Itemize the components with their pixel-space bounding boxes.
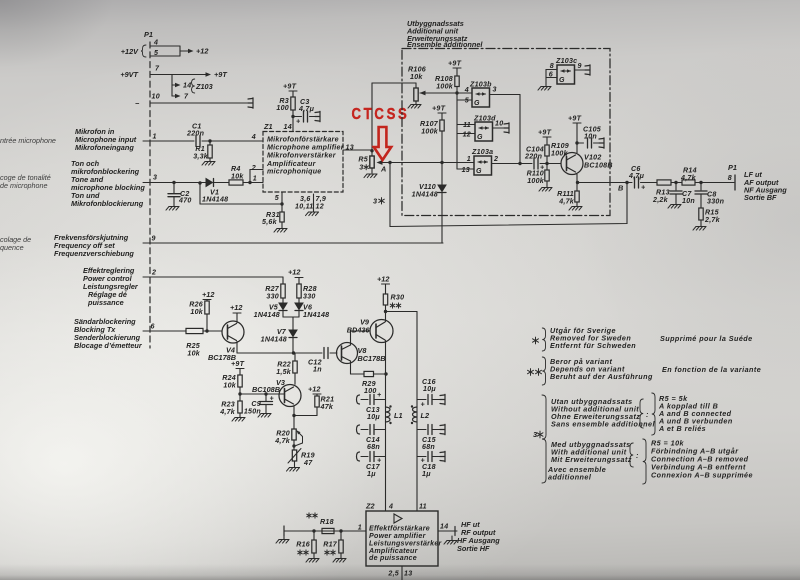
svg-text:1μ: 1μ (422, 470, 431, 478)
svg-text:+: + (377, 457, 381, 465)
svg-text:Mikrofonförstärkare: Mikrofonförstärkare (267, 136, 339, 144)
svg-text:220n: 220n (186, 130, 205, 138)
svg-text:220n: 220n (524, 153, 543, 161)
svg-text:Connexion A–B supprimée: Connexion A–B supprimée (651, 471, 753, 480)
svg-text:1N4148: 1N4148 (202, 196, 228, 204)
svg-text:1,5k: 1,5k (276, 368, 292, 376)
svg-text:1: 1 (253, 175, 257, 183)
svg-text:Z103: Z103 (195, 82, 213, 91)
svg-text:Blocage d’émetteur: Blocage d’émetteur (74, 341, 143, 350)
svg-text:10k: 10k (410, 73, 423, 81)
svg-text:1N4148: 1N4148 (261, 336, 287, 344)
svg-text:10k: 10k (223, 382, 236, 390)
svg-text:+: + (421, 457, 425, 465)
svg-text:Z103a: Z103a (471, 148, 493, 156)
svg-text:1: 1 (153, 133, 157, 141)
svg-text:Beruht auf der Ausführung: Beruht auf der Ausführung (550, 372, 653, 381)
svg-text:+: + (296, 118, 300, 126)
svg-text:R30: R30 (391, 294, 405, 302)
svg-text:2,5: 2,5 (387, 570, 399, 578)
svg-text:Amplificateur: Amplificateur (266, 160, 317, 168)
svg-text:Sortie BF: Sortie BF (744, 193, 777, 202)
svg-text:4,7μ: 4,7μ (298, 105, 315, 113)
svg-text::: : (646, 410, 649, 419)
svg-text:G: G (559, 76, 565, 84)
svg-text:4,7k: 4,7k (219, 408, 236, 416)
svg-text:+12: +12 (202, 290, 214, 299)
svg-text:Entfernt für Schweden: Entfernt für Schweden (550, 341, 636, 350)
svg-text:de puissance: de puissance (369, 554, 417, 562)
svg-text:100: 100 (364, 387, 377, 395)
svg-text:Sortie HF: Sortie HF (457, 544, 490, 553)
svg-text:+12: +12 (308, 385, 320, 394)
svg-text:10n: 10n (682, 197, 695, 205)
svg-text:BC108B: BC108B (584, 162, 613, 170)
svg-text:quence: quence (0, 243, 24, 252)
svg-text:+9T: +9T (568, 115, 582, 123)
svg-text:B: B (618, 184, 623, 193)
svg-text:R18: R18 (320, 518, 334, 526)
svg-text:+9T: +9T (283, 83, 297, 91)
svg-text:additionnel: additionnel (548, 473, 592, 482)
svg-text:4: 4 (251, 133, 256, 141)
svg-text:10,11: 10,11 (295, 203, 313, 211)
svg-text:11: 11 (419, 503, 427, 511)
svg-text:1N4148: 1N4148 (412, 191, 438, 199)
svg-text:L1: L1 (394, 411, 403, 420)
svg-text:8: 8 (728, 174, 732, 182)
svg-text:+: + (377, 391, 381, 399)
svg-text:6: 6 (549, 71, 553, 79)
svg-text:Microphone amplifier: Microphone amplifier (267, 144, 345, 152)
svg-text:3: 3 (493, 86, 497, 94)
svg-text:13: 13 (462, 166, 470, 174)
svg-text:R5: R5 (358, 156, 368, 164)
svg-text:BC178B: BC178B (358, 354, 386, 363)
svg-text:3,3k: 3,3k (193, 153, 209, 161)
svg-text:R16: R16 (296, 541, 310, 549)
svg-text::: : (636, 451, 639, 460)
svg-text:Frequenzverschiebung: Frequenzverschiebung (54, 249, 134, 258)
svg-text:4: 4 (464, 86, 469, 94)
svg-text:330: 330 (303, 293, 316, 301)
svg-text:11: 11 (463, 121, 471, 129)
svg-text:4,7k: 4,7k (680, 174, 697, 182)
svg-text:Mikrofoneingang: Mikrofoneingang (75, 143, 134, 152)
svg-text:+12: +12 (196, 47, 208, 56)
svg-text:Z103c: Z103c (555, 57, 577, 65)
svg-text:+9T: +9T (214, 70, 227, 79)
svg-text:4: 4 (153, 39, 158, 47)
svg-text:5,6k: 5,6k (262, 218, 278, 226)
svg-text:1: 1 (467, 155, 471, 163)
svg-text:CTCSS: CTCSS (352, 106, 410, 123)
svg-text:2: 2 (151, 269, 156, 277)
svg-text:10: 10 (152, 93, 160, 101)
svg-text:+9VT: +9VT (120, 70, 138, 79)
svg-text:4,7k: 4,7k (274, 437, 291, 445)
svg-text:1μ: 1μ (367, 470, 376, 478)
svg-text:14: 14 (440, 523, 448, 531)
svg-text:7: 7 (184, 93, 189, 101)
svg-text:8: 8 (550, 62, 554, 70)
svg-text:Z1: Z1 (263, 122, 273, 131)
svg-text:2: 2 (493, 155, 498, 163)
svg-text:+9T: +9T (448, 60, 462, 68)
svg-text:Mikrofonverstärker: Mikrofonverstärker (267, 152, 337, 160)
svg-text:68n: 68n (422, 443, 435, 451)
svg-text:R17: R17 (323, 541, 338, 549)
svg-text:100k: 100k (421, 128, 439, 136)
svg-text:13: 13 (404, 570, 412, 578)
svg-text:+: + (421, 401, 425, 409)
svg-text:9: 9 (578, 62, 582, 70)
svg-text:Ensemble additionnel: Ensemble additionnel (407, 40, 483, 49)
svg-text:10k: 10k (187, 350, 200, 358)
svg-text:10μ: 10μ (423, 385, 436, 393)
svg-text:100k: 100k (436, 83, 454, 91)
svg-text:9: 9 (152, 235, 156, 243)
svg-text:1N4148: 1N4148 (254, 311, 280, 319)
svg-text:de microphone: de microphone (0, 181, 48, 190)
svg-text:Mikrofonblockierung: Mikrofonblockierung (71, 199, 144, 208)
svg-text:−: − (135, 99, 140, 108)
svg-text:+12: +12 (288, 268, 300, 277)
svg-text:G: G (477, 133, 483, 141)
svg-text:14: 14 (284, 123, 292, 131)
svg-text:A: A (380, 165, 386, 174)
svg-text:10μ: 10μ (367, 413, 380, 421)
svg-text:14: 14 (183, 82, 191, 90)
svg-text:150n: 150n (244, 408, 262, 416)
svg-text:1N4148: 1N4148 (303, 311, 329, 319)
svg-text:Z2: Z2 (365, 502, 375, 511)
svg-text:100k: 100k (527, 177, 545, 185)
svg-text:L2: L2 (421, 411, 430, 420)
svg-text:3: 3 (533, 430, 537, 439)
svg-text:+9T: +9T (432, 105, 446, 113)
svg-text:7: 7 (155, 65, 160, 73)
svg-text:330n: 330n (707, 198, 725, 206)
svg-text:+12V: +12V (121, 47, 139, 56)
svg-text:A et B reliés: A et B reliés (658, 424, 706, 433)
svg-text:10k: 10k (190, 308, 203, 316)
svg-text:Supprimé pour la Suéde: Supprimé pour la Suéde (660, 334, 753, 343)
svg-text:1: 1 (358, 524, 362, 532)
svg-text:Z103b: Z103b (469, 81, 492, 89)
svg-text:P1: P1 (144, 30, 153, 39)
svg-text:12: 12 (316, 203, 324, 211)
svg-text:100: 100 (276, 104, 289, 112)
svg-text:En fonction de la variante: En fonction de la variante (662, 365, 761, 374)
svg-text:G: G (476, 167, 482, 175)
svg-text:2: 2 (251, 164, 256, 172)
svg-text:3: 3 (153, 174, 157, 182)
svg-text:+12: +12 (230, 303, 242, 312)
svg-text:12: 12 (463, 131, 471, 139)
svg-text:10: 10 (495, 120, 503, 128)
svg-text:BD436: BD436 (347, 326, 371, 335)
svg-text:+: + (270, 395, 274, 403)
svg-text:ntrée microphone: ntrée microphone (0, 136, 56, 145)
svg-text:microphonique: microphonique (267, 168, 321, 176)
svg-text:2,7k: 2,7k (704, 216, 721, 224)
svg-text:5: 5 (275, 194, 280, 202)
svg-text:47: 47 (303, 459, 313, 467)
svg-text:+9T: +9T (538, 129, 552, 137)
svg-text:+12: +12 (377, 275, 389, 284)
svg-text:puissance: puissance (87, 298, 124, 307)
svg-text:V102: V102 (584, 154, 602, 162)
svg-text:6: 6 (151, 323, 155, 331)
svg-text:Mit Erweiterungssatz: Mit Erweiterungssatz (551, 455, 632, 464)
svg-text:4,7μ: 4,7μ (628, 172, 645, 180)
svg-text:4,7k: 4,7k (558, 198, 575, 206)
svg-text:P1: P1 (728, 163, 737, 172)
svg-text:+: + (641, 184, 645, 192)
svg-text:3: 3 (373, 197, 377, 206)
svg-text:4: 4 (388, 503, 393, 511)
svg-text:3: 3 (359, 164, 363, 172)
svg-text:Z103d: Z103d (473, 115, 496, 123)
svg-text:47k: 47k (320, 403, 334, 411)
svg-text:68n: 68n (367, 443, 380, 451)
svg-text:10k: 10k (231, 173, 244, 181)
svg-text:1n: 1n (313, 366, 322, 374)
svg-text:2,2k: 2,2k (652, 196, 669, 204)
svg-text:470: 470 (178, 197, 192, 205)
svg-text:10n: 10n (584, 133, 597, 141)
svg-text:+9T: +9T (231, 360, 245, 368)
svg-text:G: G (474, 99, 480, 107)
svg-text:330: 330 (266, 293, 279, 301)
